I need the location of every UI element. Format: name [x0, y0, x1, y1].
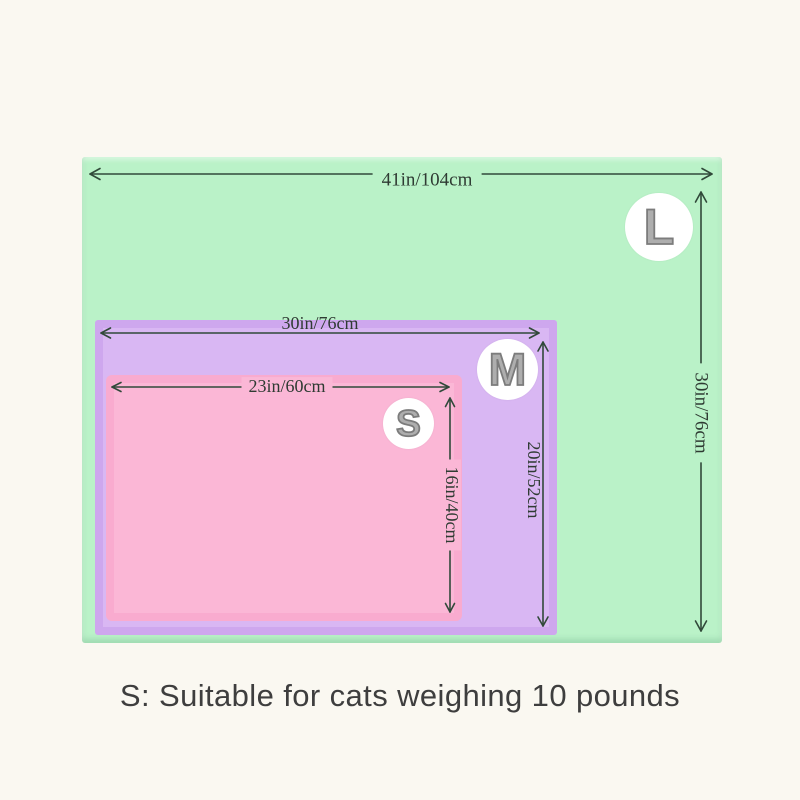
size-large-letter: L [644, 202, 675, 252]
medium-height-label: 20in/52cm [523, 437, 543, 524]
size-large-badge: L [625, 193, 693, 261]
size-medium-letter: M [489, 347, 527, 392]
size-chart: 41in/104cm 30in/76cm 30in/76cm 20in/52cm… [0, 0, 800, 800]
large-height-label: 30in/76cm [690, 363, 711, 462]
size-caption: S: Suitable for cats weighing 10 pounds [0, 678, 800, 714]
small-height-label: 16in/40cm [441, 460, 461, 551]
size-small-badge: S [383, 398, 434, 449]
size-medium-badge: M [477, 339, 538, 400]
large-width-label: 41in/104cm [373, 171, 482, 192]
small-width-label: 23in/60cm [242, 377, 333, 397]
medium-width-label: 30in/76cm [277, 314, 364, 334]
size-small-letter: S [396, 405, 421, 442]
